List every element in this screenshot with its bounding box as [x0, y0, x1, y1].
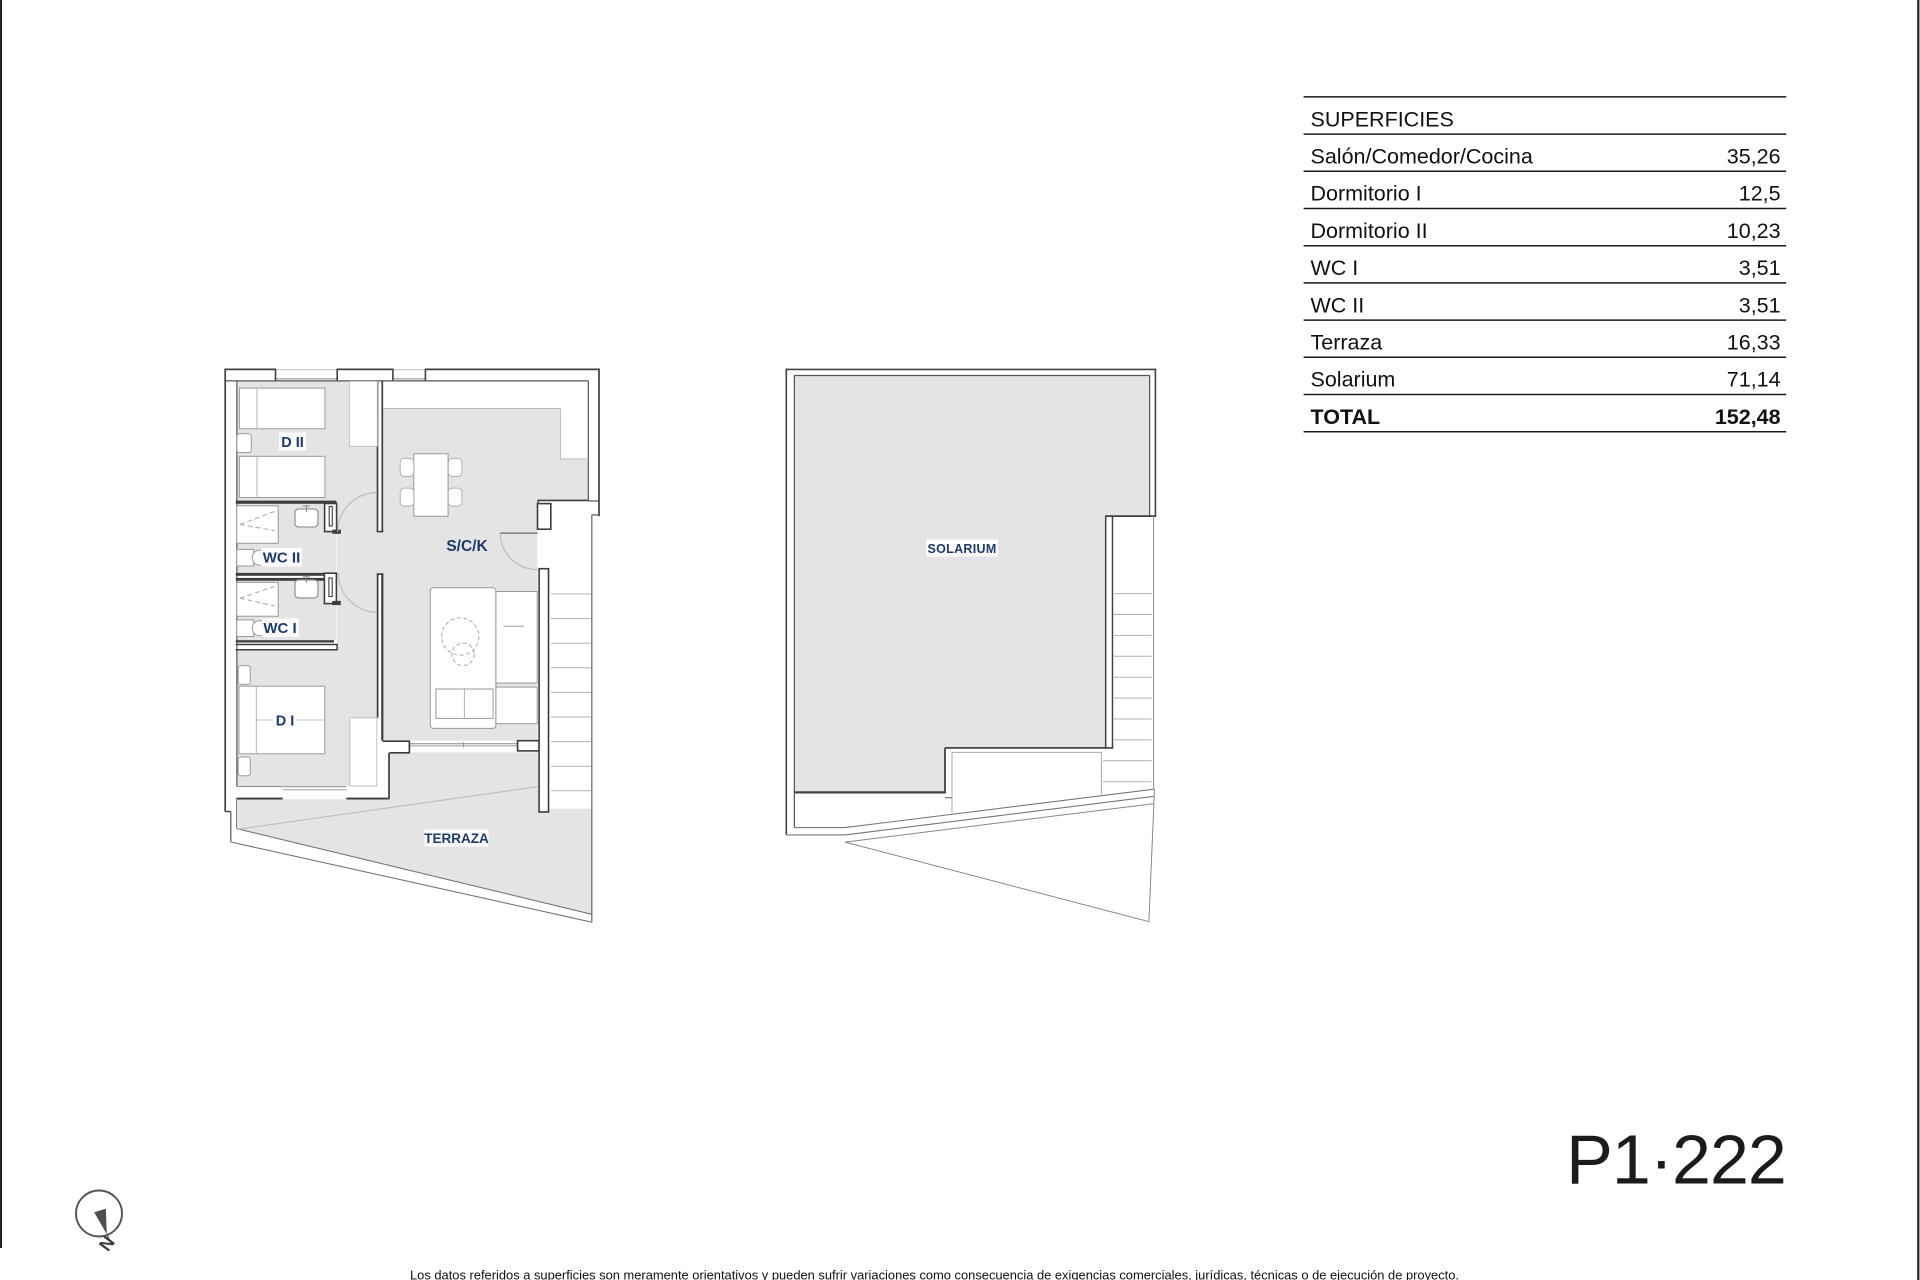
svg-text:SUPERFICIES: SUPERFICIES — [1311, 107, 1454, 131]
svg-text:35,26: 35,26 — [1727, 145, 1781, 169]
svg-text:3,51: 3,51 — [1739, 256, 1781, 280]
svg-text:D I: D I — [276, 714, 295, 730]
svg-text:Dormitorio I: Dormitorio I — [1311, 182, 1422, 206]
svg-text:Dormitorio II: Dormitorio II — [1311, 219, 1428, 243]
svg-text:10,23: 10,23 — [1727, 219, 1781, 243]
svg-text:WC II: WC II — [263, 550, 301, 567]
svg-text:WC I: WC I — [1311, 256, 1359, 280]
svg-text:WC II: WC II — [1311, 293, 1365, 317]
svg-text:Los datos referidos a superfic: Los datos referidos a superficies son me… — [410, 1268, 1459, 1280]
svg-text:D II: D II — [281, 435, 304, 451]
svg-text:Salón/Comedor/Cocina: Salón/Comedor/Cocina — [1311, 145, 1533, 169]
svg-text:16,33: 16,33 — [1727, 331, 1781, 355]
svg-text:Solarium: Solarium — [1311, 368, 1396, 392]
svg-text:152,48: 152,48 — [1715, 405, 1781, 429]
svg-text:3,51: 3,51 — [1739, 293, 1781, 317]
svg-text:SOLARIUM: SOLARIUM — [927, 542, 996, 556]
svg-text:Terraza: Terraza — [1311, 331, 1383, 355]
svg-text:P1·222: P1·222 — [1566, 1121, 1786, 1199]
svg-text:S/C/K: S/C/K — [446, 538, 488, 555]
svg-text:TOTAL: TOTAL — [1311, 405, 1381, 429]
svg-text:WC I: WC I — [263, 620, 296, 637]
svg-text:12,5: 12,5 — [1739, 182, 1781, 206]
svg-text:TERRAZA: TERRAZA — [424, 831, 489, 846]
svg-text:71,14: 71,14 — [1727, 368, 1781, 392]
